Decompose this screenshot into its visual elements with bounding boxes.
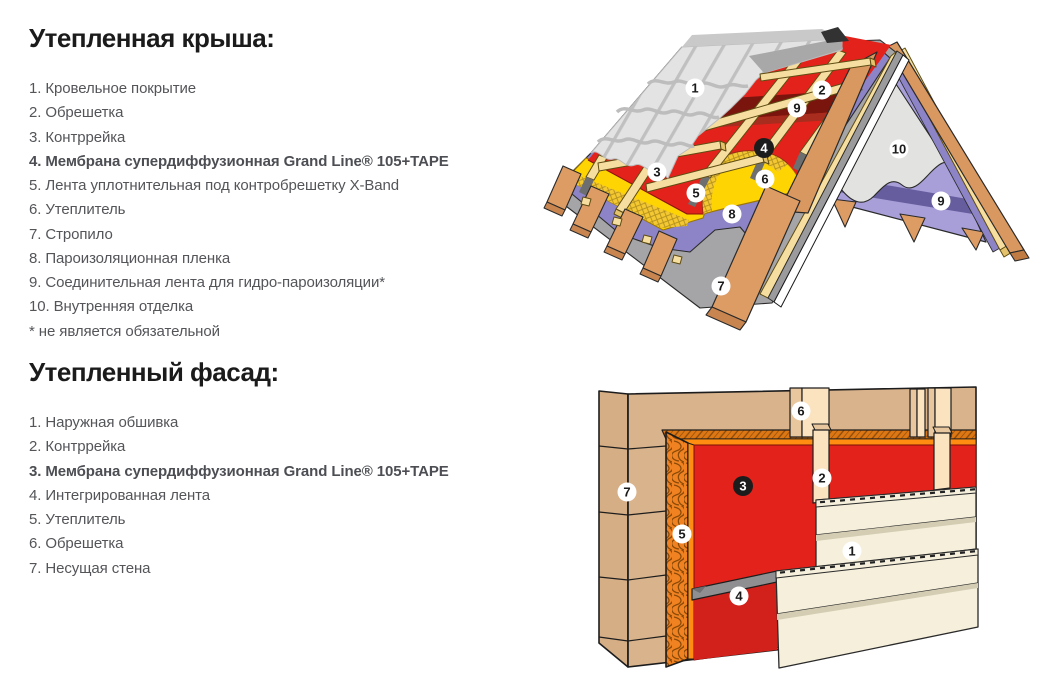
svg-text:10: 10 (892, 142, 906, 157)
svg-text:7: 7 (623, 485, 630, 500)
svg-text:4: 4 (760, 141, 768, 156)
svg-text:2: 2 (818, 471, 825, 486)
svg-text:7: 7 (717, 279, 724, 294)
svg-text:4: 4 (735, 589, 743, 604)
svg-text:6: 6 (797, 404, 804, 419)
svg-text:9: 9 (793, 101, 800, 116)
svg-text:1: 1 (848, 544, 855, 559)
svg-text:9: 9 (937, 194, 944, 209)
svg-text:3: 3 (739, 479, 746, 494)
svg-text:6: 6 (761, 172, 768, 187)
svg-text:5: 5 (692, 186, 699, 201)
svg-text:3: 3 (653, 165, 660, 180)
svg-text:1: 1 (691, 81, 698, 96)
svg-text:2: 2 (818, 83, 825, 98)
svg-text:5: 5 (678, 527, 685, 542)
svg-text:8: 8 (728, 207, 735, 222)
